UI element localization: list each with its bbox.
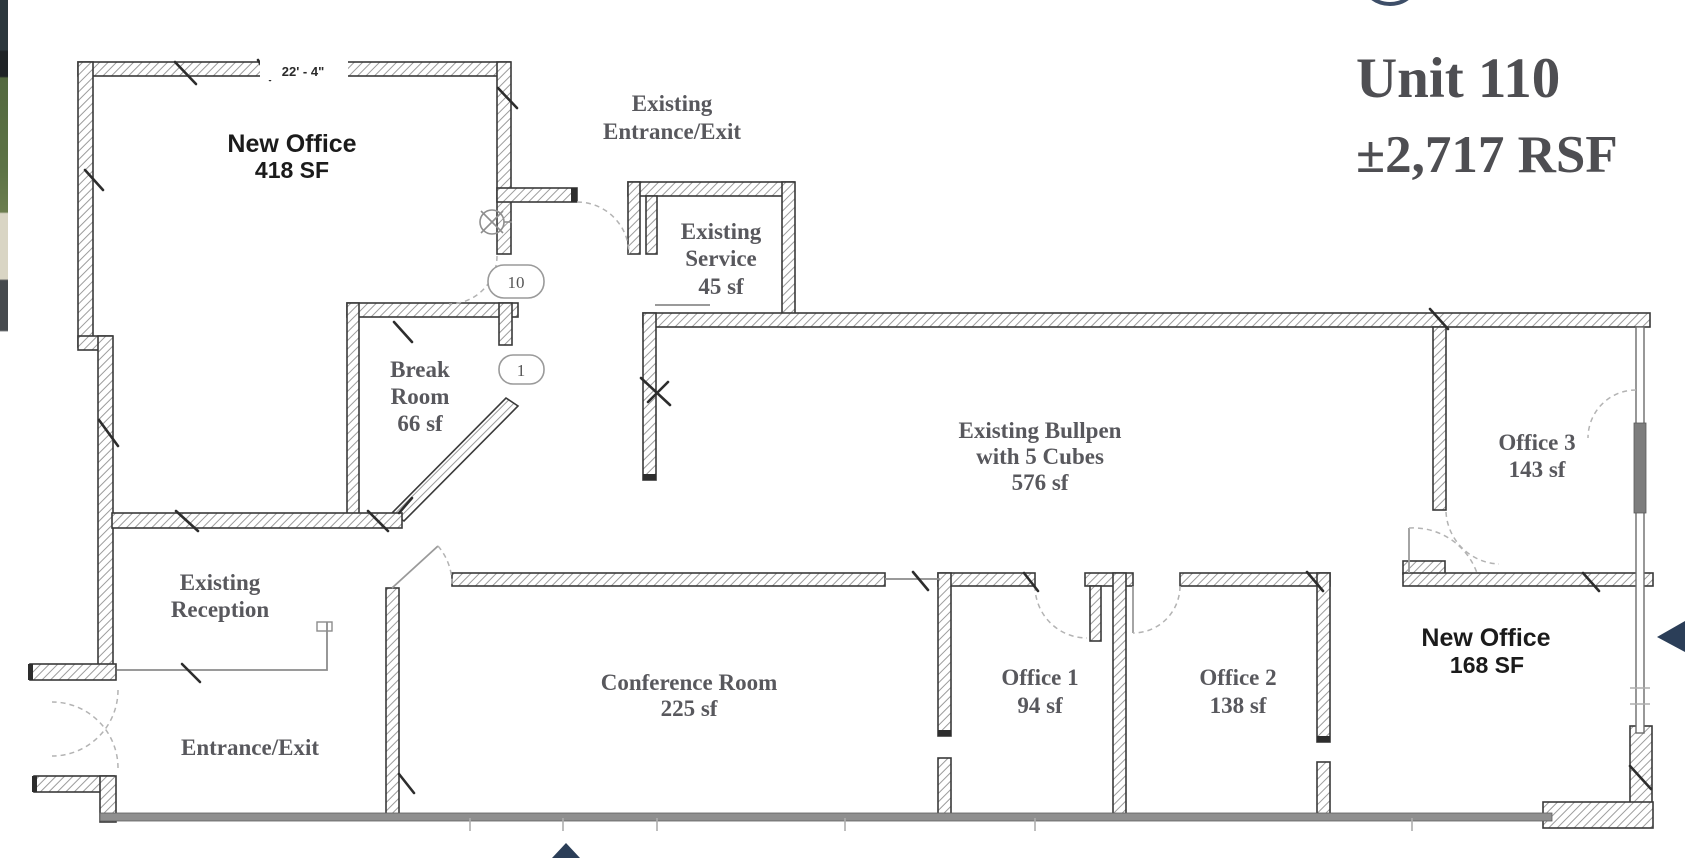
room-label-conference: Conference Room 225 sf (601, 670, 778, 721)
door-tag-10: 10 (488, 265, 544, 298)
label-line1: Existing (180, 570, 261, 595)
floor-plan: 22' - 4" 10 1 New Office 418 SF Existing… (0, 0, 1685, 858)
reception-counter (117, 622, 332, 670)
room-name: New Office (1421, 624, 1550, 652)
label-line2: Entrance/Exit (603, 119, 741, 144)
room-label-break-room: Break Room 66 sf (390, 357, 450, 436)
room-name: Office 2 (1199, 665, 1276, 690)
room-area: 66 sf (397, 411, 443, 436)
room-label-existing-service: Existing Service 45 sf (681, 219, 762, 299)
left-arrow-icon[interactable] (1657, 621, 1685, 652)
room-name: Entrance/Exit (181, 735, 319, 760)
unit-title-line1: Unit 110 (1356, 47, 1560, 110)
room-name: New Office (227, 130, 356, 158)
room-label-reception: Existing Reception (171, 570, 270, 622)
unit-title: Unit 110 ±2,717 RSF (1356, 47, 1618, 184)
room-area: 138 sf (1210, 693, 1267, 718)
room-area: 225 sf (661, 696, 718, 721)
unit-title-line2: ±2,717 RSF (1356, 126, 1618, 184)
label-line1: Existing (632, 91, 713, 116)
room-name: Conference Room (601, 670, 778, 695)
room-label-existing-entrance-exit: Existing Entrance/Exit (603, 91, 741, 144)
room-area: 168 SF (1450, 652, 1524, 678)
up-arrow-icon[interactable] (552, 843, 580, 858)
room-area: 94 sf (1017, 693, 1063, 718)
bottom-exterior-wall (100, 813, 1552, 821)
room-label-new-office-168: New Office 168 SF (1421, 624, 1550, 678)
room-area: 418 SF (255, 157, 329, 183)
door-arcs (52, 202, 1636, 768)
left-photo-strip-edge (0, 0, 8, 858)
room-area: 576 sf (1012, 470, 1069, 495)
room-label-office-1: Office 1 94 sf (1001, 665, 1078, 718)
room-label-new-office-418: New Office 418 SF (227, 130, 356, 183)
room-area: 45 sf (698, 274, 744, 299)
label-line1: Break (390, 357, 450, 382)
partial-circle-icon (1360, 0, 1420, 4)
room-name: Office 3 (1498, 430, 1575, 455)
room-label-bullpen: Existing Bullpen with 5 Cubes 576 sf (959, 418, 1122, 495)
room-label-office-2: Office 2 138 sf (1199, 665, 1276, 718)
room-label-entrance-exit: Entrance/Exit (181, 735, 319, 760)
room-area: 143 sf (1509, 457, 1566, 482)
room-name: Office 1 (1001, 665, 1078, 690)
label-line2: Room (391, 384, 450, 409)
label-line1: Existing (681, 219, 762, 244)
door-tag-1: 1 (499, 355, 544, 384)
label-line2: Reception (171, 597, 270, 622)
door-tag-1-text: 1 (517, 361, 526, 380)
floor-plan-page: 22' - 4" 10 1 New Office 418 SF Existing… (0, 0, 1685, 858)
door-tag-10-text: 10 (508, 273, 525, 292)
label-line2: with 5 Cubes (976, 444, 1104, 469)
room-label-office-3: Office 3 143 sf (1498, 430, 1575, 482)
dimension-text: 22' - 4" (282, 64, 325, 79)
dimension-label: 22' - 4" (260, 58, 348, 80)
label-line1: Existing Bullpen (959, 418, 1122, 443)
label-line2: Service (685, 246, 757, 271)
